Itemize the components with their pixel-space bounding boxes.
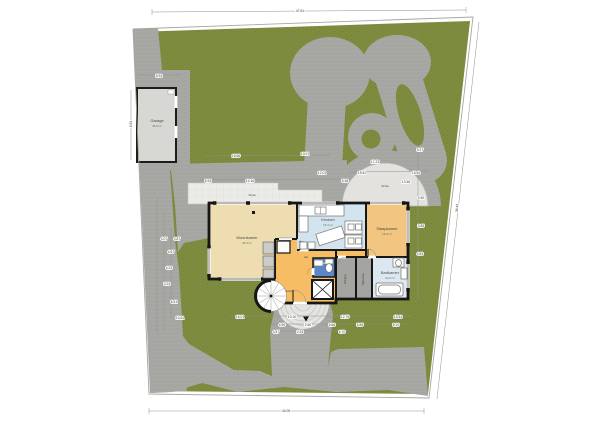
dimension-label: 6.66 [329, 323, 336, 327]
dimension-label: 2.53 [297, 330, 304, 334]
dimension-label: 4.90 [279, 323, 286, 327]
dimension-label: 5.85 [357, 323, 364, 327]
terras-label: Terras [248, 193, 256, 197]
dimension-label: 6.41 [171, 300, 178, 304]
dimension-label: 3.85 [418, 224, 425, 228]
dimension-label: 4.87 [174, 237, 181, 241]
woonkamer-label: Woonkamer [236, 235, 258, 240]
dimension-label: 8.10 [393, 323, 400, 327]
spiral-staircase [255, 281, 286, 312]
dimension-label: 4.67 [168, 250, 175, 254]
path-vertical-band [323, 98, 327, 168]
garage-area: 35.9 m² [152, 124, 162, 128]
dimension-label: 4.83 [417, 252, 424, 256]
slaapkamer-label: Slaapkamer [376, 226, 398, 231]
dimension-label: 10.10 [288, 315, 296, 319]
dimension-label: 4.23 [166, 266, 173, 270]
site-plan-drawing: 47.615.938.9316.6610.016.9314.1612.015.3… [0, 0, 600, 424]
dimension-label: 5.38 [342, 179, 349, 183]
dimension-label: 4.90 [418, 196, 425, 200]
dimension-label: 44.05 [282, 409, 290, 413]
garage-door-gap-1 [175, 96, 178, 108]
slaapkamer-area: 15.8 m² [382, 232, 392, 236]
badkamer-label: Badkamer [381, 270, 400, 275]
dimension-label: 12.01 [318, 171, 326, 175]
berging-label: Berging [343, 274, 347, 284]
grass-hole-loop [362, 130, 381, 149]
badkamer-area: 10.2 m² [385, 276, 395, 280]
bijkeuken-label: Bijkeuken [361, 273, 365, 285]
keuken-area: 16.4 m² [323, 223, 333, 227]
site-plan-canvas: 47.615.938.9316.6610.016.9314.1612.015.3… [0, 0, 600, 424]
dimension-label: 5.93 [156, 74, 163, 78]
garage-window-box [168, 90, 174, 94]
entree-label: Entree [286, 289, 294, 293]
terras-rond-label: Terras [381, 184, 389, 188]
garage-label: Garage [150, 118, 164, 123]
dimension-label: 4.47 [273, 330, 280, 334]
dimension-label: 10.01 [301, 152, 309, 156]
dimension-label: 8.93 [129, 121, 133, 128]
dimension-label: 16.01 [236, 315, 244, 319]
dimension-label: 14.16 [246, 179, 254, 183]
garage-door-gap-2 [175, 126, 178, 138]
toilet-label: Toilet [321, 261, 328, 265]
dimension-label: 15.44 [412, 171, 420, 175]
dimension-label: 3.23 [164, 282, 171, 286]
dimension-label: 15.44 [394, 315, 402, 319]
woonkamer-area: 44.9 m² [242, 241, 252, 245]
keuken-label: Keuken [321, 217, 335, 222]
dimension-label: 6.70 [339, 330, 346, 334]
dimension-label: 17.23 [371, 160, 379, 164]
dimension-label: 47.61 [296, 9, 304, 13]
dimension-label: 10.61 [176, 316, 184, 320]
dimension-label: 13.48 [402, 180, 410, 184]
dimension-label: 6.93 [205, 179, 212, 183]
lift-shaft [312, 280, 333, 299]
dimension-label: 16.66 [232, 154, 240, 158]
dimension-label: 15.81 [358, 171, 366, 175]
dimension-label: 4.07 [161, 237, 168, 241]
dimension-label: 2.60 [305, 323, 312, 327]
dimension-label: 9.27 [417, 148, 424, 152]
hal-label: Hal [304, 255, 308, 259]
dimension-label: 12.75 [341, 315, 349, 319]
dimension-label: 38.43 [455, 204, 459, 213]
